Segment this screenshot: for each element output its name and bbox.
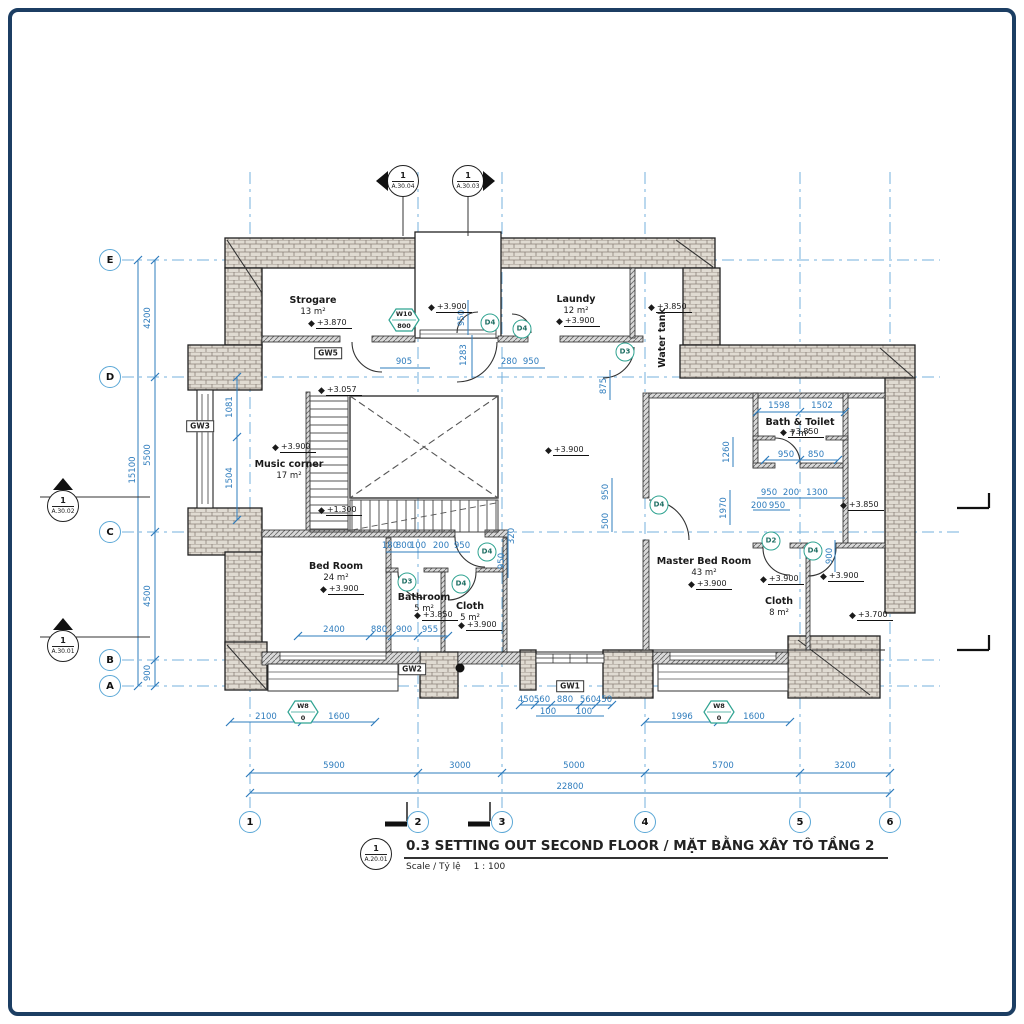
- level-diamond-icon: ◆: [320, 586, 327, 595]
- section-marker: 1A.30.03: [452, 165, 484, 197]
- level-value: +3.900: [564, 317, 600, 327]
- dimension-label: 560: [534, 696, 550, 705]
- level-marker: ◆+1.300: [318, 506, 362, 516]
- drawing-scale: Scale / Tỷ lệ 1 : 100: [404, 862, 888, 872]
- level-value: +3.900: [280, 443, 316, 453]
- level-diamond-icon: ◆: [688, 581, 695, 590]
- level-diamond-icon: ◆: [760, 576, 767, 585]
- section-marker: 1A.30.02: [47, 490, 79, 522]
- room-name: Water tank: [657, 308, 669, 368]
- level-marker: ◆+3.870: [308, 319, 352, 329]
- level-diamond-icon: ◆: [318, 507, 325, 516]
- section-sheet: A.30.02: [51, 507, 74, 516]
- room-area: 43 m²: [657, 568, 752, 579]
- door-tag: D3: [398, 573, 417, 592]
- room-label: Bathroom5 m²: [398, 592, 451, 615]
- level-value: +3.900: [553, 446, 589, 456]
- level-diamond-icon: ◆: [556, 318, 563, 327]
- level-value: +3.057: [326, 386, 362, 396]
- window-tag: W80: [287, 700, 319, 724]
- grid-bubble-row: B: [99, 649, 121, 671]
- level-value: +3.850: [848, 501, 884, 511]
- grid-bubble-column: 2: [407, 811, 429, 833]
- grid-bubble-column: 6: [879, 811, 901, 833]
- grid-bubble-column: 3: [491, 811, 513, 833]
- scale-value: 1 : 100: [474, 862, 506, 872]
- dimension-label: 880: [371, 626, 387, 635]
- section-arrow-icon: [53, 478, 73, 490]
- dimension-label: 2100: [255, 713, 277, 722]
- room-area: 12 m²: [557, 306, 596, 317]
- drawing-title: 0.3 SETTING OUT SECOND FLOOR / MẶT BẰNG …: [404, 838, 888, 859]
- title-block: 1 A.20.01 0.3 SETTING OUT SECOND FLOOR /…: [360, 838, 888, 872]
- grid-bubble-column: 1: [239, 811, 261, 833]
- room-name: Strogare: [290, 295, 337, 307]
- level-diamond-icon: ◆: [308, 320, 315, 329]
- dimension-label: 200: [751, 502, 767, 511]
- dimension-label: 5700: [712, 762, 734, 771]
- dimension-label: 2400: [323, 626, 345, 635]
- wall-type-tag: GW5: [314, 347, 342, 359]
- level-marker: ◆+3.900: [428, 303, 472, 313]
- room-label: Water tank: [657, 308, 669, 368]
- section-marker-circle: 1A.30.03: [452, 165, 484, 197]
- level-diamond-icon: ◆: [840, 502, 847, 511]
- room-area: 8 m²: [765, 608, 793, 619]
- section-marker-circle: 1A.30.01: [47, 630, 79, 662]
- room-name: Bath & Toilet: [765, 417, 834, 429]
- window-tag-sill: 800: [388, 323, 420, 330]
- dimension-label: 200: [433, 542, 449, 551]
- dimension-label: 875: [600, 378, 609, 394]
- dimension-label: 1300: [806, 489, 828, 498]
- level-marker: ◆+3.900: [545, 446, 589, 456]
- dimension-label: 950: [778, 451, 794, 460]
- level-value: +3.900: [696, 580, 732, 590]
- dimension-label: 450: [596, 696, 612, 705]
- door-tag: D4: [481, 314, 500, 333]
- level-diamond-icon: ◆: [428, 304, 435, 313]
- section-sheet: A.30.03: [456, 182, 479, 191]
- dimension-label: 5500: [144, 444, 153, 466]
- room-area: 24 m²: [309, 573, 363, 584]
- room-area: 5 m²: [398, 604, 451, 615]
- dimension-label: 3200: [834, 762, 856, 771]
- dimension-label: 1600: [328, 713, 350, 722]
- level-value: +3.900: [768, 575, 804, 585]
- section-marker: 1A.30.04: [387, 165, 419, 197]
- wall-type-tag: GW3: [186, 420, 214, 432]
- room-name: Music corner: [255, 459, 324, 471]
- room-label: Cloth8 m²: [765, 596, 793, 619]
- room-label: Master Bed Room43 m²: [657, 556, 752, 579]
- dimension-label: 900: [826, 548, 835, 564]
- room-area: 17 m²: [255, 471, 324, 482]
- level-diamond-icon: ◆: [318, 387, 325, 396]
- section-number: 1: [52, 496, 74, 507]
- dimension-label: 1283: [460, 344, 469, 366]
- level-diamond-icon: ◆: [849, 612, 856, 621]
- level-diamond-icon: ◆: [820, 573, 827, 582]
- door-tag: D2: [762, 532, 781, 551]
- grid-bubble-row: E: [99, 249, 121, 271]
- scale-label: Scale / Tỷ lệ: [406, 862, 461, 872]
- section-marker-circle: 1A.30.02: [47, 490, 79, 522]
- dimension-label: 950: [498, 553, 507, 569]
- wall-type-tag: GW2: [398, 663, 426, 675]
- dimension-label: 1504: [226, 467, 235, 489]
- level-value: +3.870: [316, 319, 352, 329]
- dimension-label: 100: [540, 708, 556, 717]
- dimension-label: 1970: [720, 497, 729, 519]
- dimension-label: 280: [501, 358, 517, 367]
- viewport-number: 1: [365, 844, 387, 855]
- window-tag-sill: 0: [287, 715, 319, 722]
- grid-bubble-row: A: [99, 675, 121, 697]
- room-name: Laundy: [557, 294, 596, 306]
- door-tag: D3: [616, 343, 635, 362]
- grid-bubble-column: 5: [789, 811, 811, 833]
- dimension-label: 450: [518, 696, 534, 705]
- room-name: Master Bed Room: [657, 556, 752, 568]
- dimension-label: 905: [396, 358, 412, 367]
- wall-type-tag: GW1: [556, 680, 584, 692]
- dimension-label: 100: [576, 708, 592, 717]
- dimension-label: 1260: [723, 441, 732, 463]
- room-label: Bath & Toilet7 m²: [765, 417, 834, 440]
- dimension-label: 950: [523, 358, 539, 367]
- room-area: 7 m²: [765, 429, 834, 440]
- dimension-label: 3000: [449, 762, 471, 771]
- dimension-label: 4500: [144, 585, 153, 607]
- dimension-label: 5000: [563, 762, 585, 771]
- room-label: Cloth5 m²: [456, 601, 484, 624]
- dimension-label: 850: [808, 451, 824, 460]
- level-value: +1.300: [326, 506, 362, 516]
- room-area: 13 m²: [290, 307, 337, 318]
- section-number: 1: [52, 636, 74, 647]
- dimension-label: 955: [422, 626, 438, 635]
- level-diamond-icon: ◆: [648, 304, 655, 313]
- dimension-label: 320: [508, 528, 517, 544]
- dimension-label: 880: [557, 696, 573, 705]
- drawing-sheet: 9051283280950950875159815029508509502001…: [0, 0, 1024, 1024]
- room-name: Cloth: [765, 596, 793, 608]
- level-marker: ◆+3.900: [688, 580, 732, 590]
- dimension-label: 950: [454, 542, 470, 551]
- viewport-sheet: A.20.01: [364, 855, 387, 864]
- dimension-label: 1598: [768, 402, 790, 411]
- level-diamond-icon: ◆: [545, 447, 552, 456]
- dimension-label: 22800: [556, 783, 583, 792]
- window-tag-sill: 0: [703, 715, 735, 722]
- window-tag-code: W8: [287, 703, 319, 710]
- dimension-label: 1081: [226, 396, 235, 418]
- viewport-marker: 1 A.20.01: [360, 838, 392, 870]
- dimension-label: 5900: [323, 762, 345, 771]
- level-marker: ◆+3.700: [849, 611, 893, 621]
- level-marker: ◆+3.850: [648, 303, 692, 313]
- level-value: +3.900: [828, 572, 864, 582]
- level-value: +3.900: [436, 303, 472, 313]
- dimension-label: 200: [783, 489, 799, 498]
- section-number: 1: [457, 171, 479, 182]
- level-marker: ◆+3.900: [272, 443, 316, 453]
- level-marker: ◆+3.900: [820, 572, 864, 582]
- room-name: Cloth: [456, 601, 484, 613]
- dimension-label: 1996: [671, 713, 693, 722]
- section-sheet: A.30.04: [391, 182, 414, 191]
- dimension-label: 560: [580, 696, 596, 705]
- dimension-label: 950: [769, 502, 785, 511]
- level-marker: ◆+3.900: [320, 585, 364, 595]
- room-name: Bed Room: [309, 561, 363, 573]
- section-marker-circle: 1A.30.04: [387, 165, 419, 197]
- dimension-label: 900: [144, 665, 153, 681]
- window-tag: W10800: [388, 308, 420, 332]
- section-arrow-icon: [53, 618, 73, 630]
- door-tag: D4: [478, 543, 497, 562]
- level-value: +3.700: [857, 611, 893, 621]
- window-tag-code: W10: [388, 311, 420, 318]
- dimension-label: 900: [396, 626, 412, 635]
- dimension-label: 4200: [144, 307, 153, 329]
- dimension-label: 1502: [811, 402, 833, 411]
- level-marker: ◆+3.057: [318, 386, 362, 396]
- room-label: Strogare13 m²: [290, 295, 337, 318]
- dimension-label: 500: [602, 513, 611, 529]
- room-label: Bed Room24 m²: [309, 561, 363, 584]
- door-tag: D4: [513, 320, 532, 339]
- section-marker: 1A.30.01: [47, 630, 79, 662]
- room-name: Bathroom: [398, 592, 451, 604]
- level-marker: ◆+3.850: [840, 501, 884, 511]
- window-tag-code: W8: [703, 703, 735, 710]
- level-diamond-icon: ◆: [272, 444, 279, 453]
- section-arrow-icon: [483, 171, 495, 191]
- section-arrow-icon: [376, 171, 388, 191]
- dimension-label: 100: [410, 542, 426, 551]
- room-label: Laundy12 m²: [557, 294, 596, 317]
- room-area: 5 m²: [456, 613, 484, 624]
- section-sheet: A.30.01: [51, 647, 74, 656]
- section-number: 1: [392, 171, 414, 182]
- dimension-label: 1600: [743, 713, 765, 722]
- level-value: +3.900: [328, 585, 364, 595]
- door-tag: D4: [452, 575, 471, 594]
- dimension-label: 950: [761, 489, 777, 498]
- grid-bubble-column: 4: [634, 811, 656, 833]
- level-marker: ◆+3.900: [556, 317, 600, 327]
- window-tag: W80: [703, 700, 735, 724]
- door-tag: D4: [804, 542, 823, 561]
- room-label: Music corner17 m²: [255, 459, 324, 482]
- door-tag: D4: [650, 496, 669, 515]
- grid-bubble-row: D: [99, 366, 121, 388]
- level-marker: ◆+3.900: [760, 575, 804, 585]
- grid-bubble-row: C: [99, 521, 121, 543]
- dimension-label: 950: [602, 484, 611, 500]
- dimension-label: 15100: [129, 456, 138, 483]
